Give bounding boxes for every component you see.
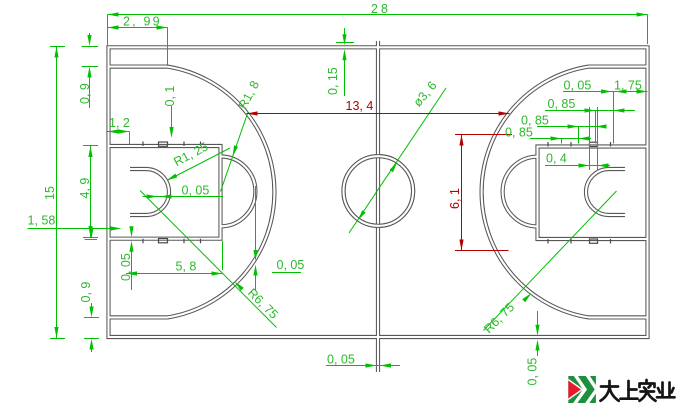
svg-text:6, 1: 6, 1: [448, 188, 462, 209]
svg-text:0, 85: 0, 85: [548, 97, 576, 111]
svg-text:1, 58: 1, 58: [28, 214, 56, 228]
svg-text:0, 05: 0, 05: [277, 258, 305, 272]
svg-text:4, 9: 4, 9: [78, 178, 92, 199]
svg-text:0, 15: 0, 15: [326, 67, 340, 95]
svg-text:0, 05: 0, 05: [564, 79, 592, 93]
svg-text:0, 1: 0, 1: [163, 86, 177, 107]
svg-text:0, 05: 0, 05: [182, 184, 210, 198]
svg-text:1, 2: 1, 2: [109, 116, 130, 130]
svg-text:13, 4: 13, 4: [346, 99, 374, 113]
svg-text:5, 8: 5, 8: [176, 260, 197, 274]
svg-text:0, 05: 0, 05: [119, 253, 133, 281]
svg-text:0, 05: 0, 05: [526, 358, 540, 386]
svg-text:0, 85: 0, 85: [505, 126, 533, 140]
svg-text:0, 9: 0, 9: [79, 282, 93, 303]
svg-text:28: 28: [371, 2, 391, 16]
svg-text:1, 75: 1, 75: [614, 79, 642, 93]
svg-text:2, 99: 2, 99: [123, 15, 162, 29]
svg-text:0, 9: 0, 9: [78, 83, 92, 104]
svg-text:0, 05: 0, 05: [327, 353, 355, 367]
svg-text:15: 15: [43, 186, 57, 200]
svg-text:0, 4: 0, 4: [546, 152, 567, 166]
